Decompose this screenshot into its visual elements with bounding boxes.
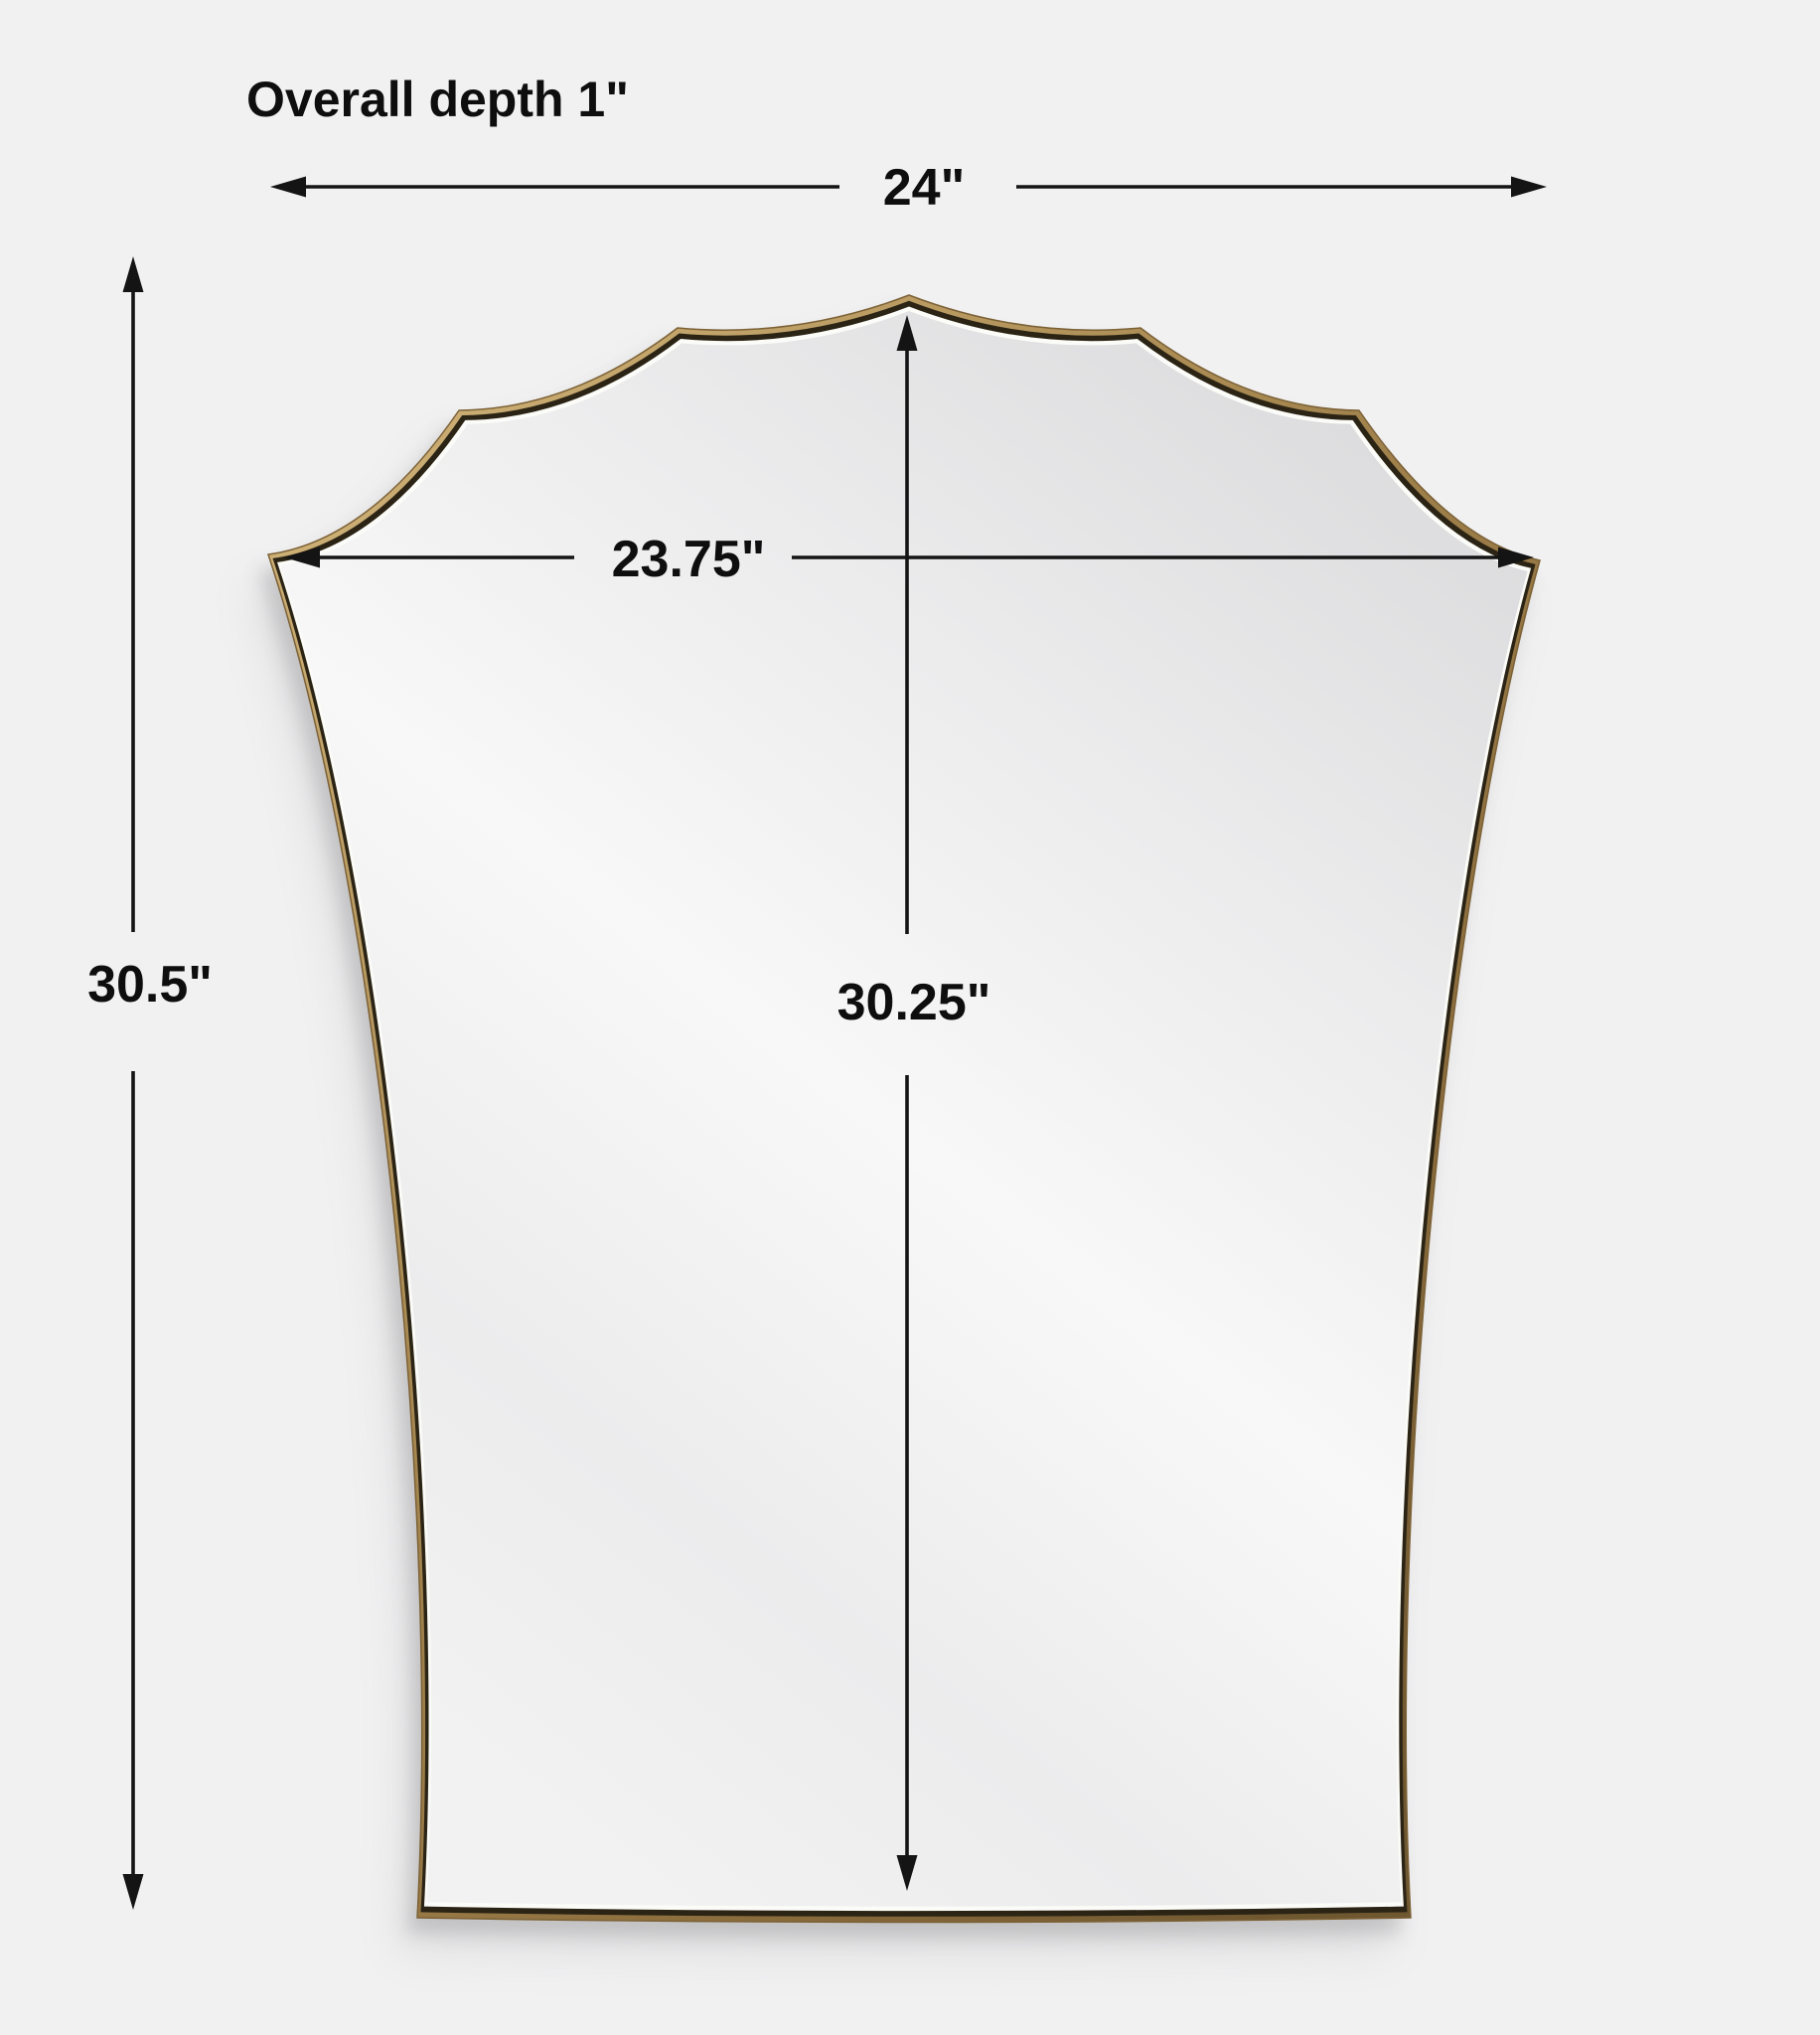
overall-width-label: 24" <box>883 159 966 217</box>
mirror-glass <box>281 311 1528 1907</box>
mirror-height-label: 30.25" <box>837 974 991 1031</box>
overall-depth-label: Overall depth 1" <box>246 72 629 127</box>
dimension-diagram: Overall depth 1" 24" 23.75" 30.5" 30.25" <box>0 0 1820 2035</box>
mirror <box>268 295 1540 1923</box>
mirror-width-label: 23.75" <box>612 531 766 588</box>
mirror-dimension-figure: Overall depth 1" 24" 23.75" 30.5" 30.25" <box>0 0 1820 2035</box>
overall-height-label: 30.5" <box>87 956 213 1014</box>
